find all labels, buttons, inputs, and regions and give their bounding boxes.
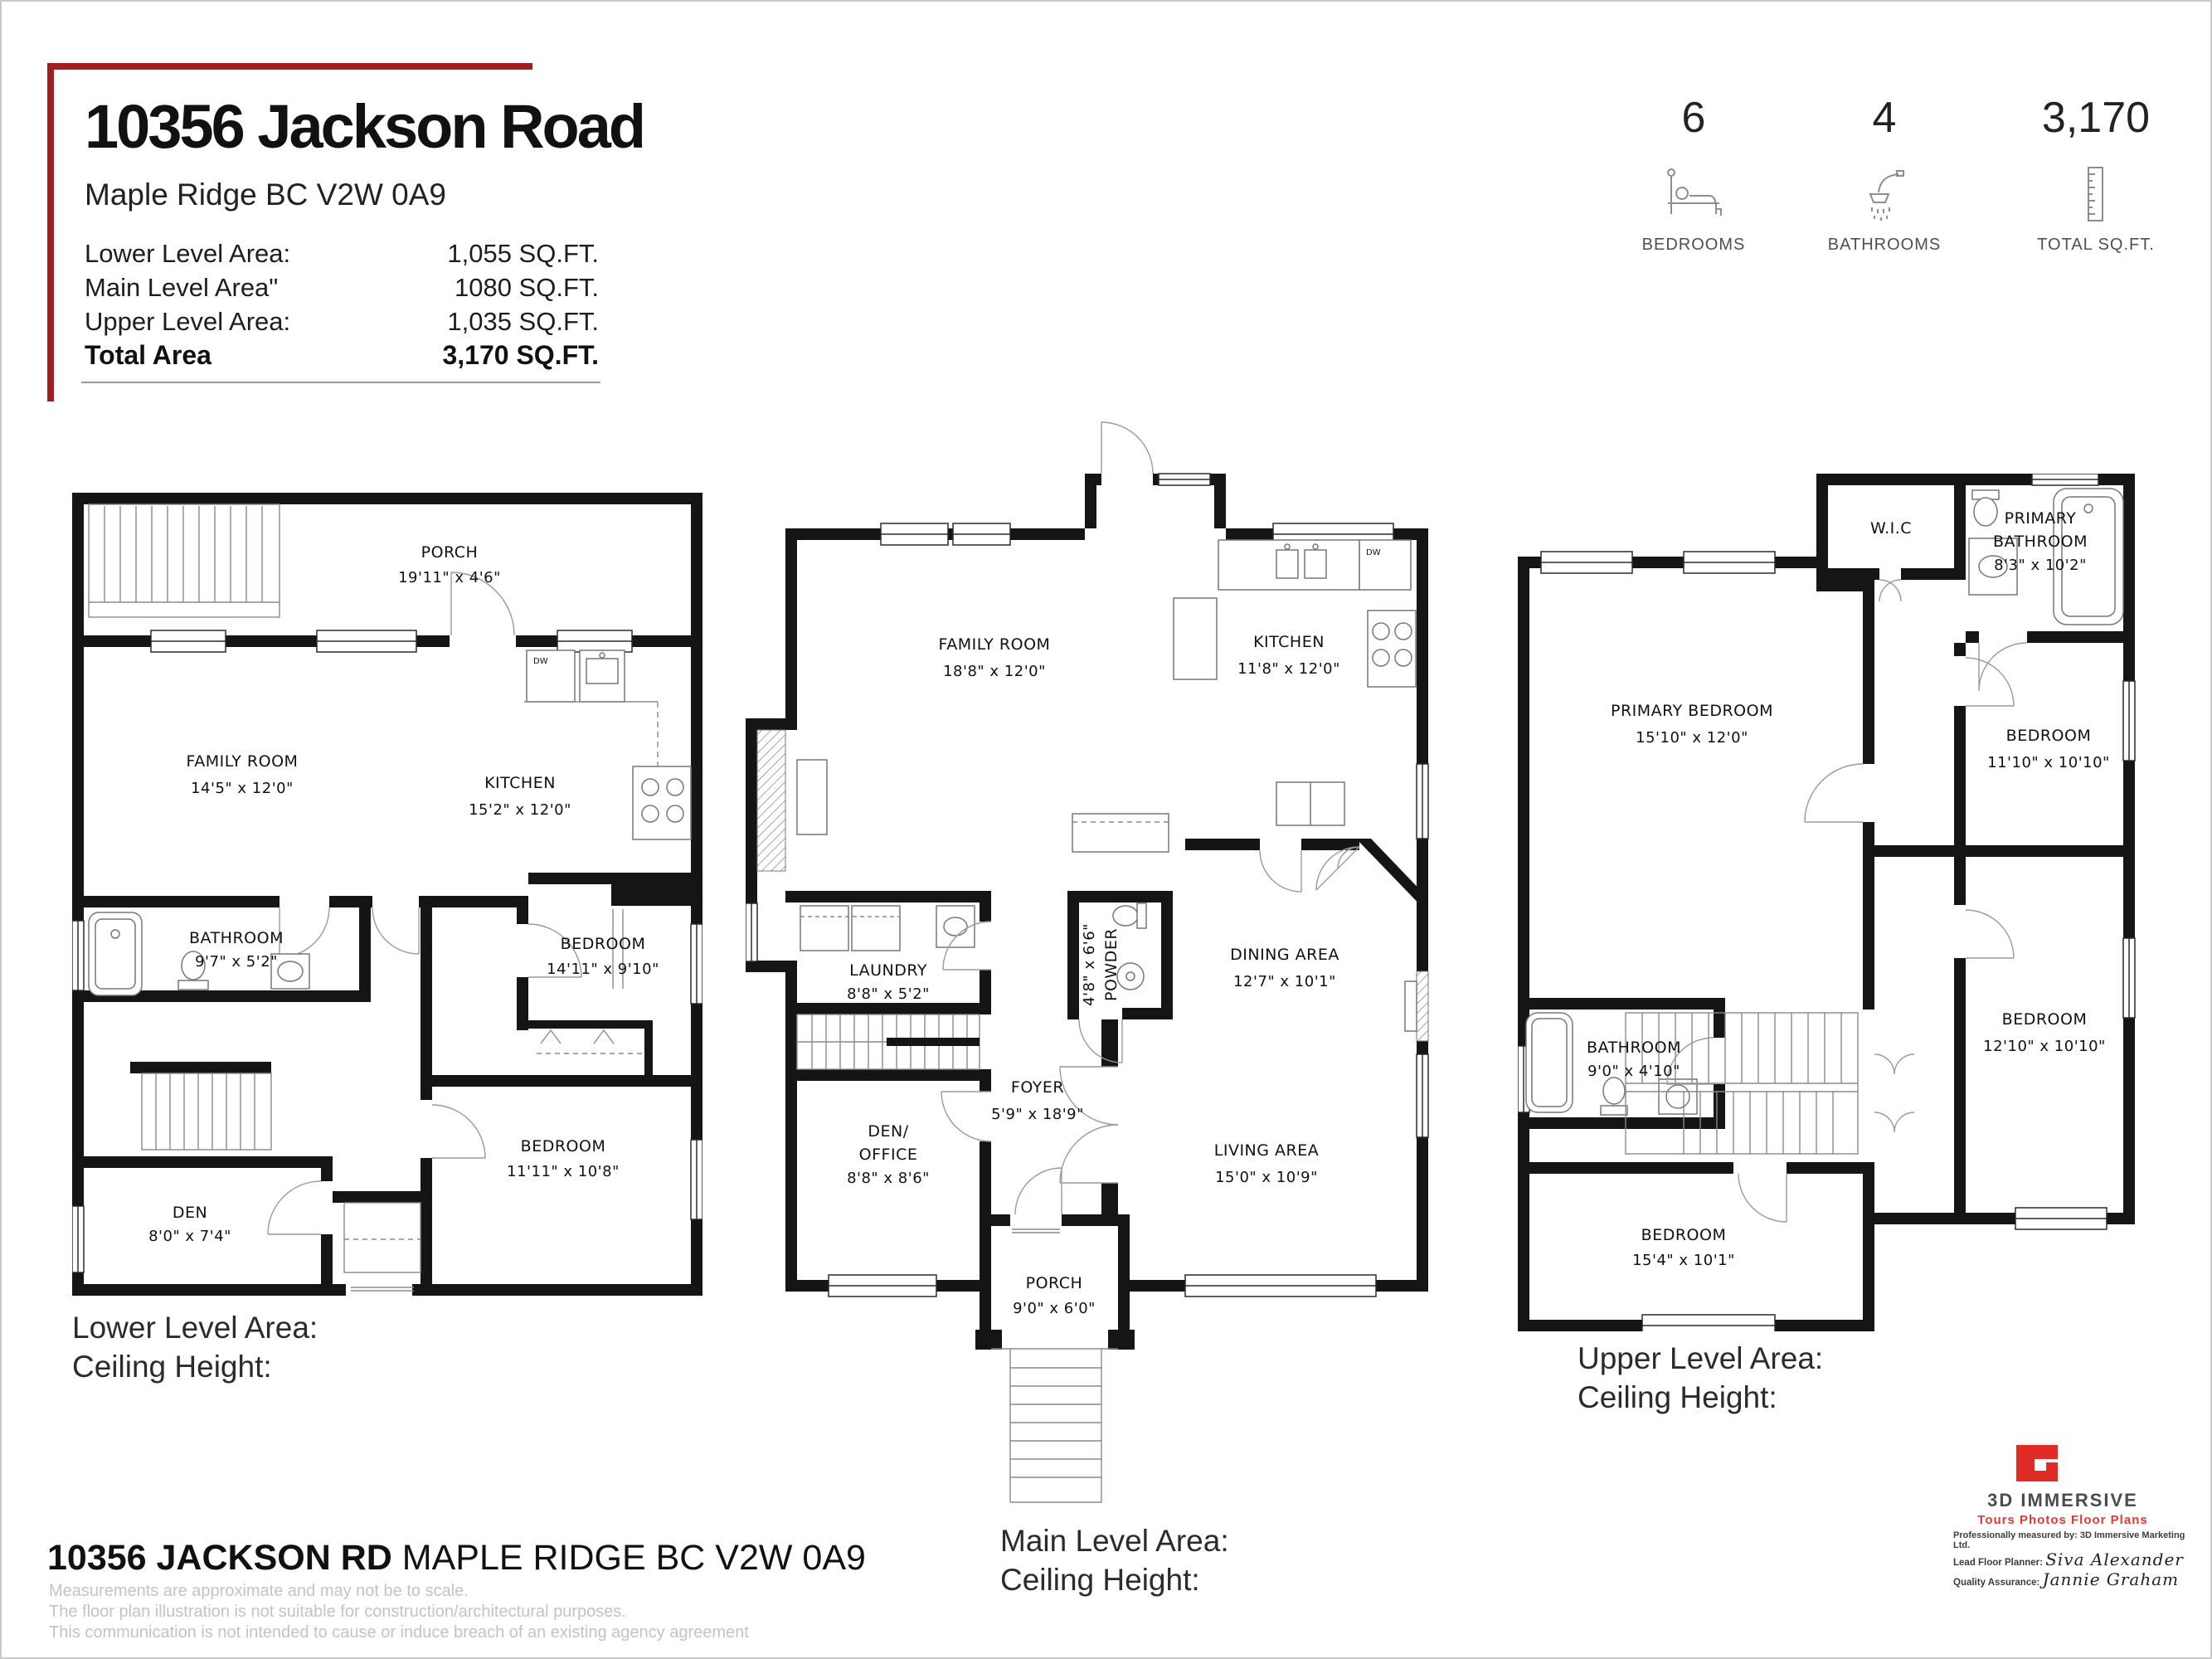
main-caption-line1: Main Level Area: (1000, 1521, 1229, 1560)
red-corner-accent-horizontal (47, 63, 532, 70)
room-label-dining: DINING AREA (1230, 946, 1339, 964)
ruler-icon (2064, 163, 2128, 227)
planner-label: Lead Floor Planner: (1953, 1558, 2043, 1568)
room-dims-bathroom: 9'0" x 4'10" (1587, 1063, 1680, 1080)
upper-windows (1518, 474, 2135, 1331)
room-label-porch: PORCH (421, 543, 479, 562)
bathrooms-label: BATHROOMS (1818, 236, 1951, 255)
dw-label: DW (1366, 548, 1381, 557)
bathrooms-count: 4 (1818, 93, 1951, 143)
room-dims-pbedroom: 15'10" x 12'0" (1636, 729, 1748, 747)
room-label-laundry: LAUNDRY (849, 961, 927, 980)
total-area-row: Total Area 3,170 SQ.FT. (85, 340, 599, 371)
area-value: 1,035 SQ.FT. (447, 307, 599, 340)
footer-address: 10356 JACKSON RD MAPLE RIDGE BC V2W 0A9 (47, 1538, 866, 1579)
main-caption: Main Level Area: Ceiling Height: (1000, 1521, 1229, 1599)
planner-row: Lead Floor Planner: Siva Alexander (1953, 1550, 2184, 1569)
main-porch-steps (991, 1349, 1118, 1502)
upper-level-plan: W.I.C PRIMARY BATHROOM 8'3" x 10'2" PRIM… (1518, 474, 2146, 1331)
logo-title: 3D IMMERSIVE (1976, 1490, 2150, 1511)
room-dims-bedroom2: 12'10" x 10'10" (1983, 1038, 2106, 1055)
main-laundry-fixtures (800, 906, 975, 951)
room-label-foyer: FOYER (1011, 1078, 1064, 1097)
room-dims-bedroom1: 11'10" x 10'10" (1987, 754, 2110, 771)
shower-icon (1852, 163, 1917, 227)
total-underline (81, 382, 600, 383)
room-dims-family: 18'8" x 12'0" (943, 663, 1046, 680)
main-stairs (797, 1014, 980, 1069)
area-row-main: Main Level Area" 1080 SQ.FT. (85, 273, 599, 306)
area-value: 1,055 SQ.FT. (447, 239, 599, 272)
disclaimer-line-2: The floor plan illustration is not suita… (49, 1603, 626, 1622)
room-label-pbath2: BATHROOM (1993, 533, 2088, 551)
room-label-family: FAMILY ROOM (939, 635, 1051, 654)
floor-plan-page: 10356 Jackson Road Maple Ridge BC V2W 0A… (0, 0, 2212, 1659)
room-label-kitchen: KITCHEN (484, 774, 556, 792)
main-bench (1072, 814, 1169, 852)
room-dims-dining: 12'7" x 10'1" (1233, 973, 1336, 990)
room-dims-bedroom3: 15'4" x 10'1" (1632, 1252, 1735, 1269)
room-dims-foyer: 5'9" x 18'9" (991, 1106, 1084, 1123)
lower-caption-line2: Ceiling Height: (72, 1347, 318, 1386)
dw-label: DW (533, 657, 548, 666)
bed-icon (1661, 163, 1726, 227)
lower-closets (344, 1030, 644, 1291)
room-dims-den: 8'8" x 8'6" (847, 1170, 930, 1187)
total-value: 3,170 SQ.FT. (442, 340, 599, 371)
main-level-plan: DW (746, 407, 1434, 1540)
room-dims-kitchen: 15'2" x 12'0" (469, 801, 571, 819)
room-dims-den: 8'0" x 7'4" (148, 1228, 231, 1245)
main-caption-line2: Ceiling Height: (1000, 1560, 1229, 1599)
bedrooms-label: BEDROOMS (1627, 236, 1760, 255)
room-label-kitchen: KITCHEN (1253, 633, 1325, 651)
sqft-count: 3,170 (2025, 93, 2166, 143)
page-subtitle: Maple Ridge BC V2W 0A9 (85, 178, 446, 212)
area-label: Main Level Area" (85, 273, 278, 306)
room-label-bathroom: BATHROOM (189, 929, 284, 947)
qa-row: Quality Assurance: Jannie Graham (1953, 1569, 2179, 1589)
room-label-bedroom1: BEDROOM (2006, 727, 2092, 745)
stat-bathrooms: 4 BATHROOMS (1818, 93, 1951, 255)
room-label-bathroom: BATHROOM (1587, 1039, 1681, 1057)
room-dims-laundry: 8'8" x 5'2" (847, 985, 930, 1003)
room-label-powder: POWDER (1102, 928, 1121, 1001)
upper-caption-line1: Upper Level Area: (1578, 1339, 1823, 1378)
room-label-family: FAMILY ROOM (187, 752, 299, 771)
upper-walls (1518, 474, 2135, 1331)
red-corner-accent-vertical (47, 63, 54, 401)
qa-signature: Jannie Graham (2043, 1569, 2180, 1589)
footer-address-light: MAPLE RIDGE BC V2W 0A9 (392, 1538, 866, 1578)
room-dims-porch: 9'0" x 6'0" (1013, 1300, 1096, 1317)
room-dims-porch: 19'11" x 4'6" (398, 569, 501, 586)
room-label-den1: DEN/ (868, 1122, 908, 1141)
room-dims-living: 15'0" x 10'9" (1215, 1169, 1318, 1186)
area-value: 1080 SQ.FT. (455, 273, 599, 306)
qa-label: Quality Assurance: (1953, 1578, 2039, 1588)
footer-address-bold: 10356 JACKSON RD (47, 1538, 392, 1578)
logo-subtitle: Tours Photos Floor Plans (1976, 1513, 2150, 1527)
bedrooms-count: 6 (1627, 93, 1760, 143)
measured-by-text: Professionally measured by: 3D Immersive… (1953, 1530, 2185, 1550)
lower-level-plan: DW PORCH 19'11" x 4'6" FAMILY ROOM 14'5"… (72, 493, 702, 1296)
upper-room-labels: W.I.C PRIMARY BATHROOM 8'3" x 10'2" PRIM… (1587, 509, 2110, 1269)
area-label: Upper Level Area: (85, 307, 290, 340)
room-label-bedroom2: BEDROOM (2002, 1010, 2088, 1029)
area-row-upper: Upper Level Area: 1,035 SQ.FT. (85, 307, 599, 340)
total-label: Total Area (85, 340, 211, 371)
room-dims-bedroom2: 11'11" x 10'8" (507, 1163, 620, 1180)
area-label: Lower Level Area: (85, 239, 290, 272)
disclaimer-line-1: Measurements are approximate and may not… (49, 1582, 469, 1601)
room-label-bedroom3: BEDROOM (1641, 1226, 1727, 1244)
upper-caption-line2: Ceiling Height: (1578, 1378, 1823, 1417)
lower-caption-line1: Lower Level Area: (72, 1308, 318, 1347)
room-label-pbedroom: PRIMARY BEDROOM (1611, 702, 1773, 720)
room-label-living: LIVING AREA (1214, 1141, 1319, 1160)
3d-immersive-logo-icon (2016, 1445, 2058, 1481)
room-dims-bathroom: 9'7" x 5'2" (195, 953, 278, 971)
room-dims-kitchen: 11'8" x 12'0" (1237, 660, 1340, 678)
room-dims-bedroom1: 14'11" x 9'10" (547, 961, 659, 978)
room-dims-family: 14'5" x 12'0" (191, 780, 294, 797)
lower-stairs (142, 1073, 271, 1150)
room-label-pbath1: PRIMARY (2005, 509, 2077, 528)
area-row-lower: Lower Level Area: 1,055 SQ.FT. (85, 239, 599, 272)
main-kitchen-fixtures: DW (1174, 540, 1416, 825)
lower-porch-stairs (89, 504, 280, 617)
room-label-bedroom2: BEDROOM (521, 1137, 606, 1155)
lower-caption: Lower Level Area: Ceiling Height: (72, 1308, 318, 1386)
planner-signature: Siva Alexander (2045, 1550, 2184, 1569)
room-dims-powder: 4'8" x 6'6" (1081, 923, 1098, 1006)
room-dims-pbath: 8'3" x 10'2" (1994, 557, 2087, 574)
stat-sqft: 3,170 TOTAL SQ.FT. (2025, 93, 2166, 255)
page-title: 10356 Jackson Road (85, 91, 644, 162)
room-label-den2: OFFICE (859, 1146, 918, 1164)
room-label-porch: PORCH (1026, 1274, 1083, 1292)
room-label-bedroom1: BEDROOM (561, 935, 646, 953)
stat-bedrooms: 6 BEDROOMS (1627, 93, 1760, 255)
disclaimer-line-3: This communication is not intended to ca… (49, 1623, 749, 1642)
room-label-den: DEN (173, 1204, 207, 1222)
room-label-wic: W.I.C (1870, 519, 1912, 538)
sqft-label: TOTAL SQ.FT. (2025, 236, 2166, 255)
upper-stairs (1626, 1013, 1858, 1154)
upper-caption: Upper Level Area: Ceiling Height: (1578, 1339, 1823, 1417)
